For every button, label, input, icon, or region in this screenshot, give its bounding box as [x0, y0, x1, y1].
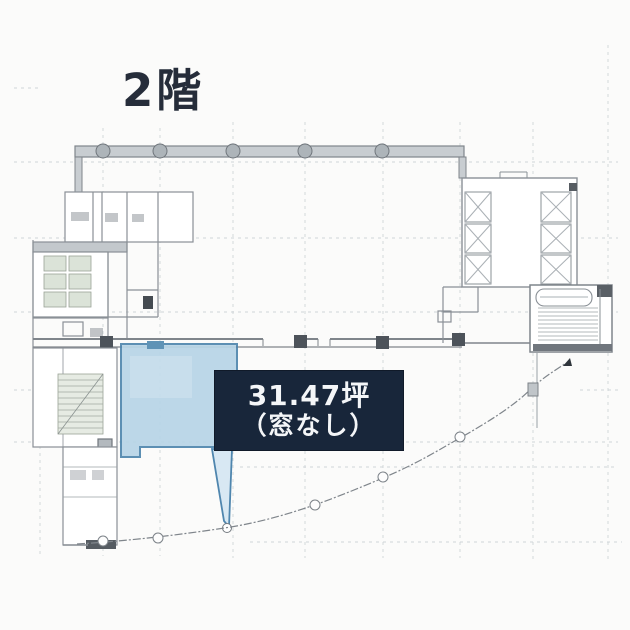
- area-size-label: 31.47坪 （窓なし）: [215, 371, 403, 450]
- facade-end-marker: [563, 358, 572, 366]
- lower-left-rooms: [33, 348, 117, 549]
- area-size-value: 31.47坪: [248, 380, 371, 412]
- floor-title: 2階: [122, 68, 204, 113]
- staircase-hatch: [58, 374, 103, 434]
- floorplan-drawing: [0, 0, 630, 630]
- floorplan-page: 2階 31.47坪 （窓なし）: [0, 0, 630, 630]
- left-service-core: [33, 192, 193, 348]
- top-exterior-wall: [75, 144, 466, 192]
- area-wedge: [212, 449, 232, 527]
- elevator-bank: [462, 172, 577, 287]
- facade-column-square: [528, 383, 538, 396]
- escalator-icon: [536, 289, 592, 306]
- door-marker: [147, 341, 164, 349]
- area-no-window-note: （窓なし）: [241, 412, 376, 441]
- staircase-room: [530, 285, 612, 428]
